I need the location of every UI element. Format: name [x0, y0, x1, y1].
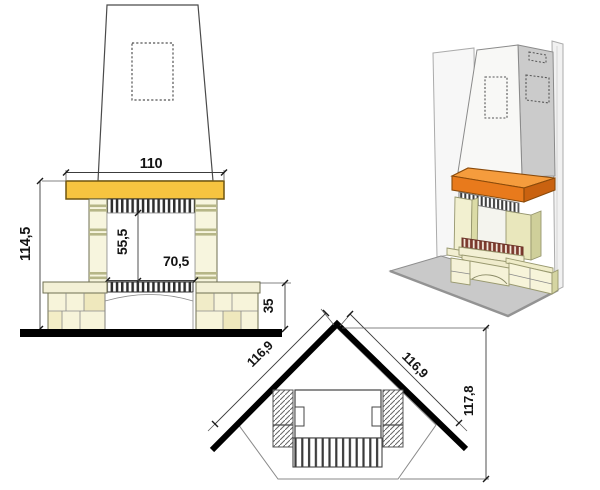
dim-label-117-8: 117,8: [461, 386, 476, 416]
dimension-base-height: 35: [260, 280, 291, 332]
hearth-slat-row: [105, 282, 193, 292]
right-column: [195, 199, 217, 282]
plan-jamb-notch-left: [295, 407, 304, 426]
ground-line: [20, 329, 282, 337]
left-column: [89, 199, 107, 282]
front-elevation-view: 110: [18, 5, 291, 337]
base-arch: [105, 293, 193, 330]
dimension-mantel-width: 110: [63, 156, 227, 180]
base-slab-left: [43, 282, 107, 293]
base-pedestal-right: [196, 293, 258, 330]
dim-label-116-9-left: 116,9: [244, 338, 276, 370]
dim-label-35: 35: [261, 298, 276, 313]
base-slab-right: [196, 282, 260, 293]
hood-right-face: [518, 45, 555, 177]
plan-column-right: [383, 390, 403, 447]
mantel-beam-front: [66, 181, 224, 199]
dim-label-114-5: 114,5: [18, 227, 34, 261]
dim-label-55-5: 55,5: [114, 228, 130, 255]
plan-firebox: [295, 390, 381, 438]
base-pedestal-left: [48, 293, 105, 330]
dim-label-70-5: 70,5: [163, 253, 190, 269]
dentil-row-top: [107, 199, 195, 213]
dim-label-116-9-right: 116,9: [399, 349, 431, 381]
perspective-view: [390, 41, 563, 316]
fireplace-drawing: 110: [0, 0, 600, 490]
technical-drawing-canvas: 110: [0, 0, 600, 490]
vent-dashed-rect: [132, 43, 173, 100]
plan-hearth-slats: [293, 438, 382, 467]
chimney-hood-outline: [98, 5, 213, 181]
plan-column-left: [273, 390, 293, 447]
plan-jamb-notch-right: [372, 407, 381, 426]
dim-label-110: 110: [140, 156, 163, 172]
